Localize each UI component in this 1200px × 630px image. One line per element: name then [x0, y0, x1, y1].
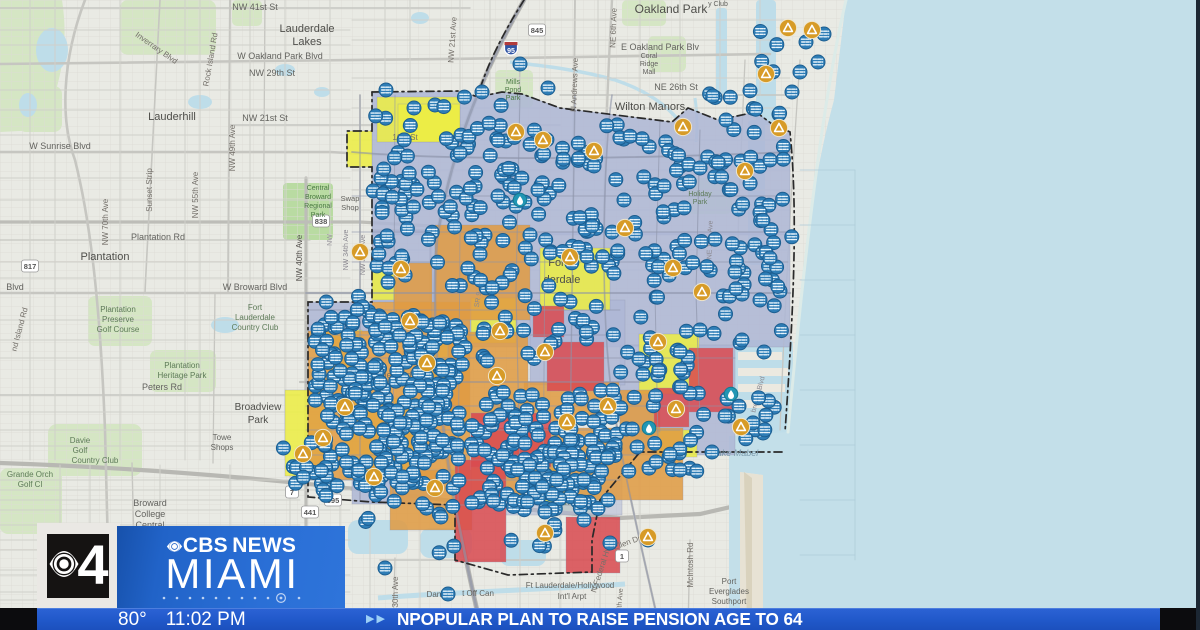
svg-text:Grande Orch: Grande Orch	[7, 470, 53, 479]
svg-text:Southport: Southport	[712, 597, 747, 606]
svg-text:Int'l Arpt: Int'l Arpt	[558, 592, 587, 601]
svg-text:Golf Course: Golf Course	[97, 325, 140, 334]
svg-text:Towe: Towe	[213, 433, 232, 442]
svg-text:Ridge: Ridge	[640, 61, 658, 68]
svg-text:Sunset Strip: Sunset Strip	[145, 168, 154, 212]
svg-text:Plantation: Plantation	[164, 361, 200, 370]
svg-text:Broadview: Broadview	[235, 402, 282, 413]
svg-text:Heritage Park: Heritage Park	[158, 371, 208, 380]
svg-text:McIntosh Rd: McIntosh Rd	[686, 543, 695, 588]
svg-text:Country Club: Country Club	[232, 323, 279, 332]
svg-text:Lauderdale: Lauderdale	[235, 313, 276, 322]
svg-text:4: 4	[77, 534, 108, 596]
svg-text:College: College	[135, 509, 166, 519]
svg-text:Shops: Shops	[211, 443, 234, 452]
svg-text:E Oakland Park Blv: E Oakland Park Blv	[621, 42, 700, 52]
svg-text:NW 55th Ave: NW 55th Ave	[191, 171, 200, 218]
svg-text:Regional: Regional	[304, 203, 332, 210]
svg-text:Broward: Broward	[305, 194, 331, 201]
svg-text:Pond: Pond	[505, 87, 521, 94]
svg-text:NE 6th Ave: NE 6th Ave	[608, 7, 618, 48]
svg-text:1: 1	[620, 552, 624, 561]
svg-text:Swap: Swap	[341, 194, 360, 203]
svg-text:Mills: Mills	[506, 79, 520, 86]
svg-text:845: 845	[531, 26, 544, 35]
svg-text:NW: NW	[327, 234, 334, 246]
svg-text:NE 26th St: NE 26th St	[654, 82, 698, 92]
svg-text:Country Club: Country Club	[72, 456, 119, 465]
svg-text:Park: Park	[506, 95, 521, 102]
svg-text:Shop: Shop	[341, 203, 359, 212]
svg-text:Lauderhill: Lauderhill	[148, 111, 196, 123]
svg-text:Everglades: Everglades	[709, 587, 749, 596]
svg-text:W Sunrise Blvd: W Sunrise Blvd	[29, 141, 91, 151]
svg-text:W Oakland Park Blvd: W Oakland Park Blvd	[237, 51, 323, 61]
svg-text:Lakes: Lakes	[292, 36, 322, 48]
svg-text:Fort: Fort	[248, 303, 263, 312]
svg-text:NW 40th Ave: NW 40th Ave	[295, 234, 304, 281]
svg-text:Blvd: Blvd	[6, 282, 24, 292]
svg-text:441: 441	[304, 508, 317, 517]
svg-text:Mall: Mall	[643, 69, 656, 76]
svg-text:Lauderdale: Lauderdale	[279, 23, 334, 35]
svg-text:W Broward Blvd: W Broward Blvd	[223, 282, 288, 292]
svg-text:Oakland Park: Oakland Park	[635, 2, 709, 16]
svg-text:Golf Cl: Golf Cl	[18, 480, 43, 489]
svg-text:Plantation Rd: Plantation Rd	[131, 232, 185, 242]
svg-text:N Andrews Ave: N Andrews Ave	[569, 57, 580, 112]
svg-text:Plantation: Plantation	[100, 305, 136, 314]
svg-text:Wilton Manors: Wilton Manors	[615, 101, 686, 113]
svg-text:95: 95	[507, 48, 515, 55]
svg-text:Coral: Coral	[641, 53, 658, 60]
svg-text:Davie: Davie	[70, 436, 91, 445]
svg-text:NW 34th Ave: NW 34th Ave	[343, 230, 350, 271]
svg-text:Park: Park	[693, 199, 708, 206]
svg-text:Central: Central	[307, 185, 330, 192]
svg-text:y Club: y Club	[708, 1, 728, 8]
svg-text:Park: Park	[311, 212, 326, 219]
svg-text:817: 817	[24, 262, 37, 271]
svg-text:Preserve: Preserve	[102, 315, 135, 324]
svg-text:Broward: Broward	[133, 498, 167, 508]
svg-text:NW 49th Ave: NW 49th Ave	[228, 124, 237, 171]
svg-text:NW 21st St: NW 21st St	[242, 113, 288, 123]
svg-text:Port: Port	[722, 577, 737, 586]
svg-text:NW 29th St: NW 29th St	[249, 68, 296, 78]
svg-text:Holiday: Holiday	[688, 191, 712, 198]
svg-text:NW 41st St: NW 41st St	[232, 2, 278, 12]
svg-text:30th Ave: 30th Ave	[391, 576, 400, 608]
svg-text:t Off Can: t Off Can	[462, 589, 494, 598]
svg-text:Peters Rd: Peters Rd	[142, 382, 182, 392]
svg-text:Plantation: Plantation	[81, 251, 130, 263]
svg-text:Park: Park	[248, 415, 270, 426]
svg-text:Golf: Golf	[73, 446, 88, 455]
svg-text:NW 70th Ave: NW 70th Ave	[101, 198, 110, 245]
